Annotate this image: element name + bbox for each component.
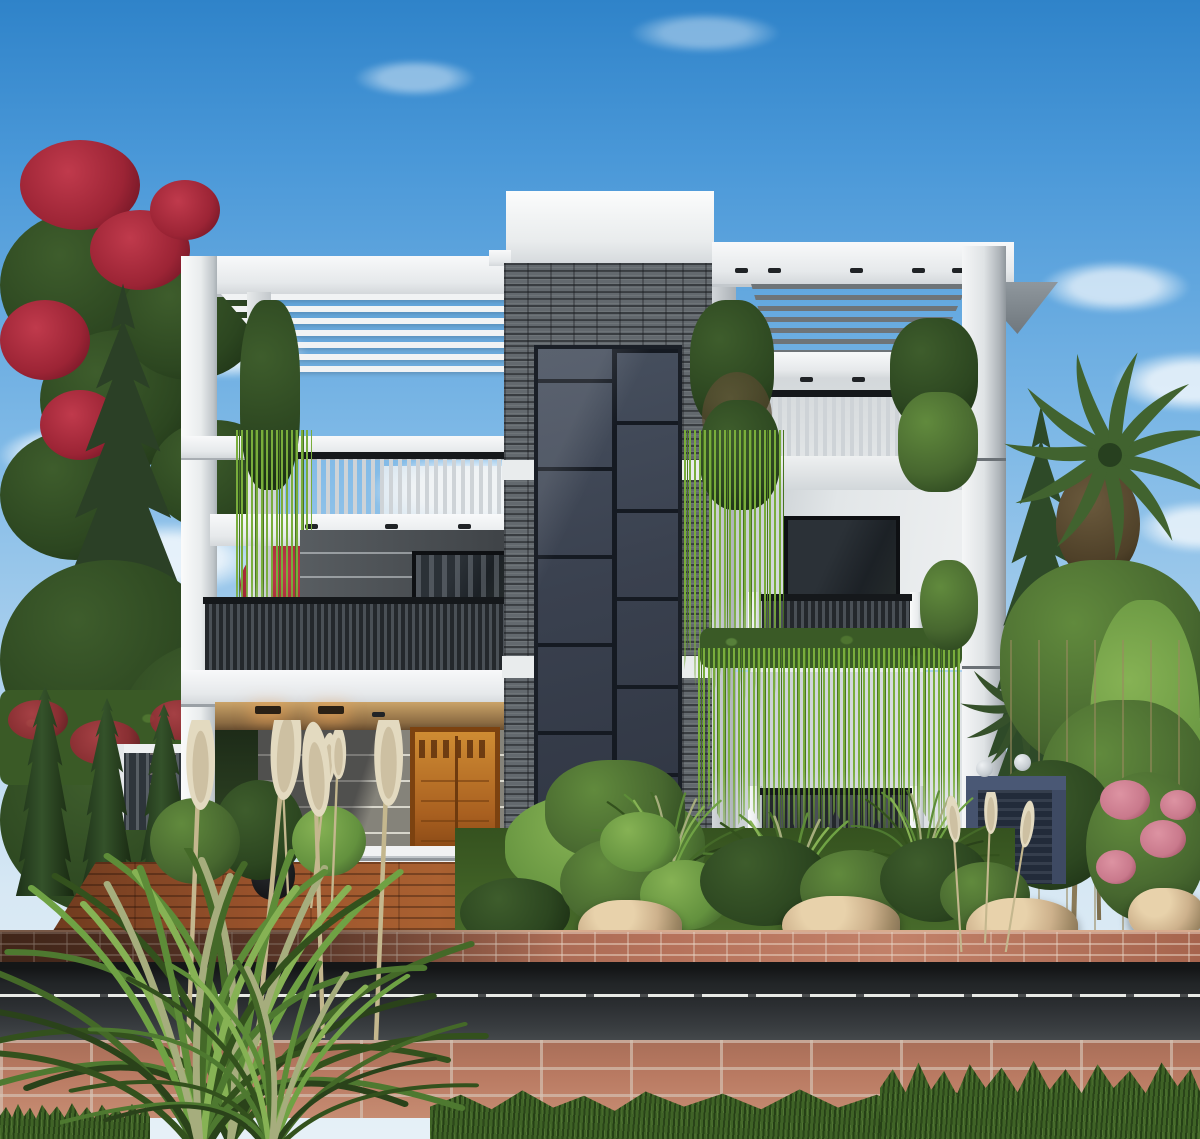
palm-tree <box>990 330 1200 580</box>
porch-ceiling-light <box>255 706 281 714</box>
cloud <box>330 55 500 101</box>
second-floor-balcony-railing-left <box>205 597 515 675</box>
slab-mark <box>502 656 536 678</box>
downlight <box>385 524 398 529</box>
tower-stone-column-left <box>504 345 534 880</box>
gate-sphere-lamp <box>1014 754 1031 771</box>
downlight <box>735 268 748 273</box>
downlight <box>800 377 813 382</box>
gate-top-bar <box>966 776 1066 790</box>
planter-shrub <box>898 392 978 492</box>
red-flower-cluster <box>150 180 220 240</box>
tower-parapet <box>506 191 714 265</box>
slab-mark <box>502 460 536 480</box>
gate-post <box>1052 790 1066 884</box>
pink-flower-cluster <box>1100 780 1150 820</box>
bed-shrub <box>600 812 680 872</box>
scene-render <box>0 0 1200 1139</box>
pink-flower-cluster <box>1140 820 1186 858</box>
gate-sphere-lamp <box>976 760 993 777</box>
pink-flower-cluster <box>1160 790 1196 820</box>
downlight <box>912 268 925 273</box>
downlight <box>850 268 863 273</box>
downlight <box>372 712 385 717</box>
pink-flower-cluster <box>1096 850 1136 884</box>
cloud <box>600 8 810 58</box>
pampas-grass <box>920 792 1050 952</box>
wall-shrub <box>920 560 978 650</box>
downlight <box>768 268 781 273</box>
fountain-grass-foreground <box>60 960 480 1139</box>
left-wing-roof-beam <box>181 256 515 297</box>
porch-ceiling-light <box>318 706 344 714</box>
downlight <box>458 524 471 529</box>
second-floor-window-left <box>412 551 515 601</box>
downlight <box>852 377 865 382</box>
